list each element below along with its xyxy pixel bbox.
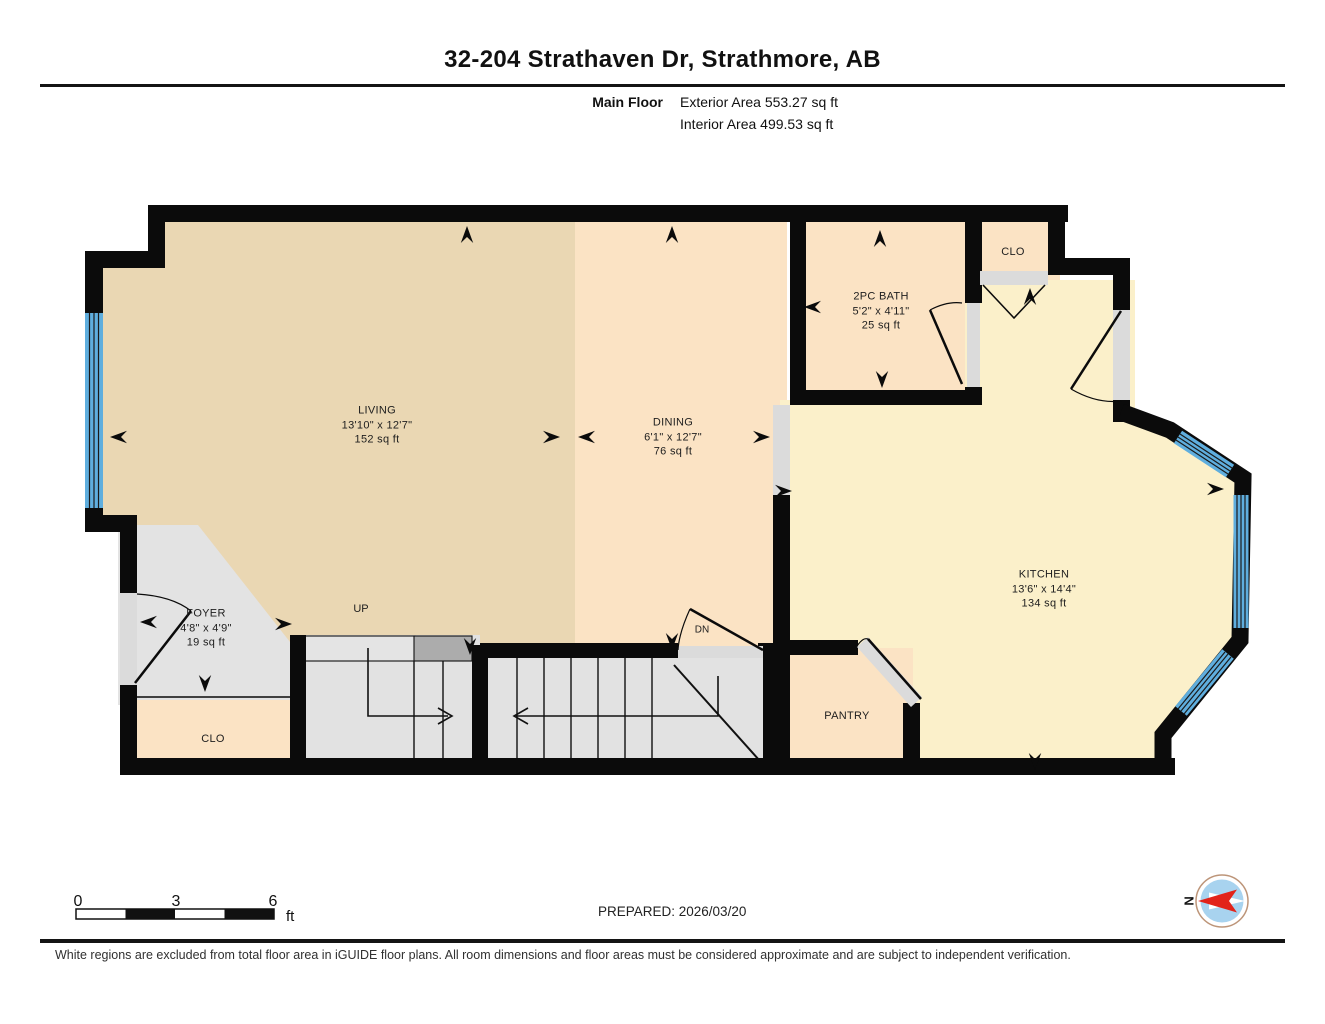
footer-divider xyxy=(40,939,1285,943)
room-dims: 4'8" x 4'9" xyxy=(180,621,231,636)
disclaimer-text: White regions are excluded from total fl… xyxy=(55,948,1285,962)
room-label-pantry: PANTRY xyxy=(824,709,869,724)
bath-door-threshold xyxy=(967,303,980,387)
floor-plan-page: 32-204 Strathaven Dr, Strathmore, AB Mai… xyxy=(0,0,1325,1024)
room-area: 152 sq ft xyxy=(342,432,413,447)
room-name: KITCHEN xyxy=(1012,567,1076,582)
room-label-bath: 2PC BATH 5'2" x 4'11" 25 sq ft xyxy=(853,289,910,333)
room-name: FOYER xyxy=(180,606,231,621)
room-label-foyer: FOYER 4'8" x 4'9" 19 sq ft xyxy=(180,606,231,650)
room-name: 2PC BATH xyxy=(853,289,910,304)
room-label-closet-entry: CLO xyxy=(201,732,225,747)
room-name: PANTRY xyxy=(824,709,869,724)
room-name: CLO xyxy=(1001,245,1025,260)
header-divider xyxy=(40,84,1285,87)
stair-landing xyxy=(302,636,415,661)
room-area: 76 sq ft xyxy=(644,444,702,459)
interior-area: Interior Area 499.53 sq ft xyxy=(680,116,833,132)
floor-plan-svg: 0 3 6 ft N xyxy=(0,0,1325,1024)
room-label-dining: DINING 6'1" x 12'7" 76 sq ft xyxy=(644,415,702,459)
front-door-threshold xyxy=(120,593,137,685)
dn-door-threshold xyxy=(678,646,763,658)
stairs-down-label: DN xyxy=(695,625,709,636)
dining-kitchen-opening xyxy=(773,405,790,495)
room-name: DINING xyxy=(644,415,702,430)
room-label-kitchen: KITCHEN 13'6" x 14'4" 134 sq ft xyxy=(1012,567,1076,611)
room-area: 25 sq ft xyxy=(853,318,910,333)
side-entry-threshold xyxy=(1113,310,1130,400)
compass-icon: N xyxy=(1182,875,1249,927)
room-dims: 13'10" x 12'7" xyxy=(342,418,413,433)
scale-tick-0: 0 xyxy=(74,893,83,910)
floor-name: Main Floor xyxy=(420,94,663,110)
stairs-up-label: UP xyxy=(353,603,368,615)
room-dims: 5'2" x 4'11" xyxy=(853,304,910,319)
room-dims: 13'6" x 14'4" xyxy=(1012,582,1076,597)
room-dims: 6'1" x 12'7" xyxy=(644,430,702,445)
room-label-living: LIVING 13'10" x 12'7" 152 sq ft xyxy=(342,403,413,447)
exterior-area: Exterior Area 553.27 sq ft xyxy=(680,94,838,110)
scale-unit: ft xyxy=(286,908,295,925)
scale-bar: 0 3 6 ft xyxy=(74,893,296,925)
closet-top-threshold xyxy=(980,271,1048,285)
room-fills xyxy=(95,215,1243,770)
room-label-closet-top: CLO xyxy=(1001,245,1025,260)
room-name: CLO xyxy=(201,732,225,747)
stair-step-dark xyxy=(414,636,472,661)
prepared-date: PREPARED: 2026/03/20 xyxy=(598,904,746,919)
room-area: 134 sq ft xyxy=(1012,596,1076,611)
scale-tick-6: 6 xyxy=(269,893,278,910)
stairs-down-fill xyxy=(483,648,780,765)
scale-tick-3: 3 xyxy=(172,893,181,910)
room-name: LIVING xyxy=(342,403,413,418)
compass-north-label: N xyxy=(1182,896,1197,905)
room-area: 19 sq ft xyxy=(180,635,231,650)
page-title: 32-204 Strathaven Dr, Strathmore, AB xyxy=(0,46,1325,74)
